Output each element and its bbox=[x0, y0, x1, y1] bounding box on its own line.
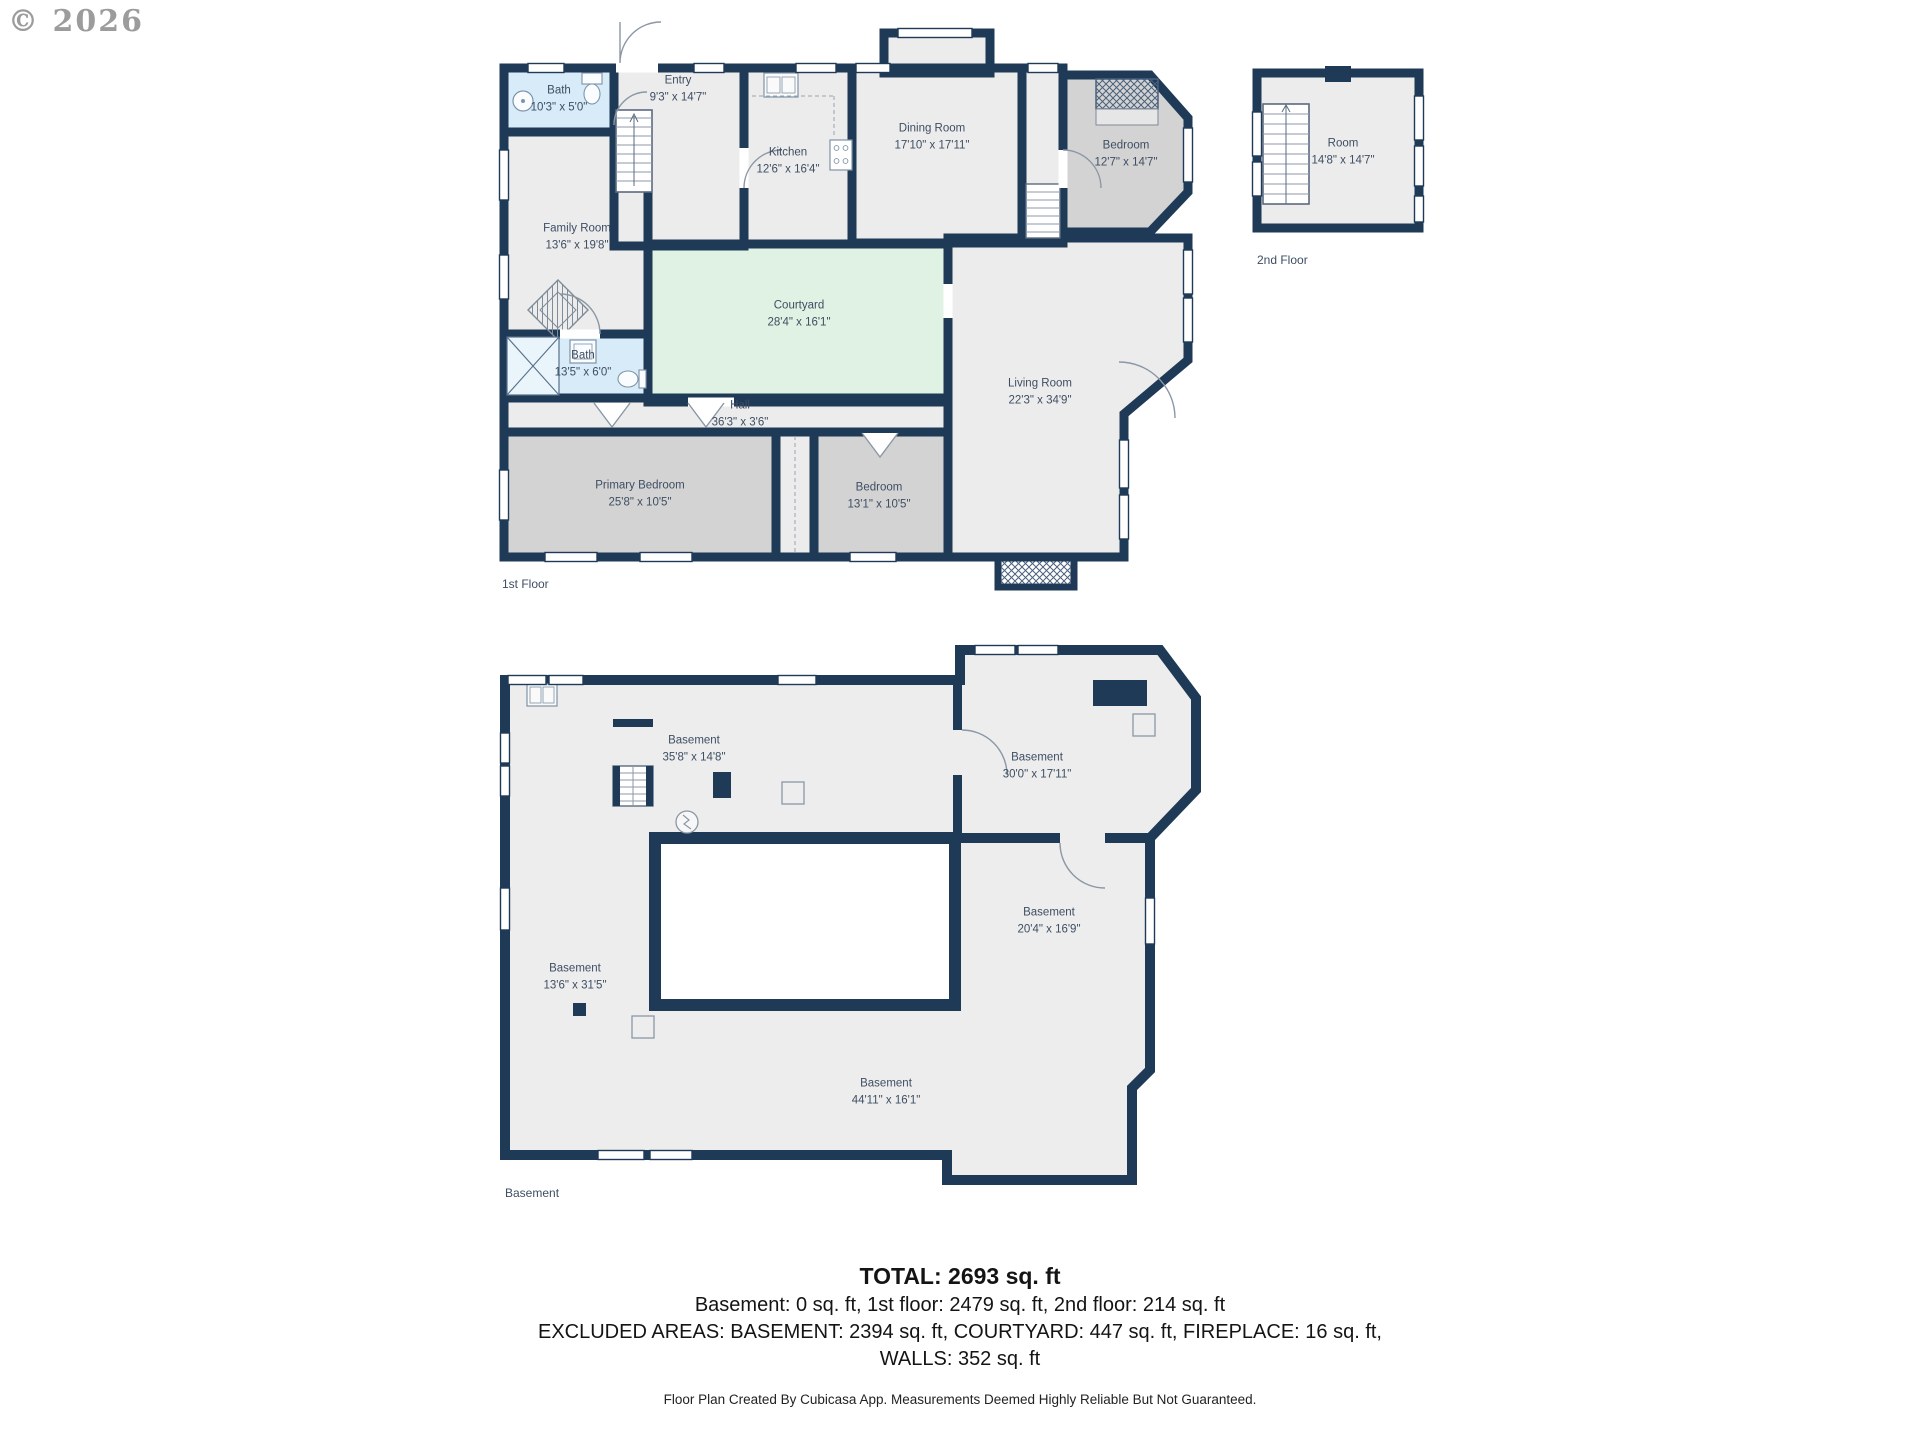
footer-disclaimer: Floor Plan Created By Cubicasa App. Meas… bbox=[0, 1392, 1920, 1407]
room-label-living-room: Living Room 22'3" x 34'9" bbox=[1008, 375, 1072, 408]
floor-label-basement: Basement bbox=[505, 1186, 559, 1200]
beam-icon bbox=[613, 719, 653, 727]
fireplace-icon bbox=[1093, 680, 1147, 706]
floor-label-2nd-floor: 2nd Floor bbox=[1257, 253, 1308, 267]
room-label-basement-5: Basement 44'11" x 16'1" bbox=[852, 1075, 921, 1108]
basement-void bbox=[655, 838, 955, 1005]
room-label-bath-1: Bath 10'3" x 5'0" bbox=[531, 82, 588, 115]
room-label-bedroom-1: Bedroom 12'7" x 14'7" bbox=[1094, 137, 1157, 170]
summary-floor-areas: Basement: 0 sq. ft, 1st floor: 2479 sq. … bbox=[0, 1294, 1920, 1317]
room-label-courtyard: Courtyard 28'4" x 16'1" bbox=[767, 297, 830, 330]
fireplace-icon bbox=[1096, 79, 1158, 125]
room-label-family-room: Family Room 13'6" x 19'8" bbox=[543, 220, 611, 253]
room-label-dining-room: Dining Room 17'10" x 17'11" bbox=[894, 120, 969, 153]
room-label-bath-2: Bath 13'5" x 6'0" bbox=[555, 347, 612, 380]
post-icon bbox=[573, 1003, 586, 1016]
room-label-primary-bedroom: Primary Bedroom 25'8" x 10'5" bbox=[595, 477, 684, 510]
summary-walls: WALLS: 352 sq. ft bbox=[0, 1348, 1920, 1371]
room-label-2nd-floor-room: Room 14'8" x 14'7" bbox=[1311, 135, 1374, 168]
room-label-basement-1: Basement 35'8" x 14'8" bbox=[662, 732, 725, 765]
stairs-icon bbox=[1026, 184, 1060, 238]
floor-label-1st-floor: 1st Floor bbox=[502, 577, 549, 591]
stove-icon bbox=[830, 140, 852, 170]
room-label-kitchen: Kitchen 12'6" x 16'4" bbox=[756, 144, 819, 177]
furnace-icon bbox=[713, 772, 731, 798]
shower-icon bbox=[507, 337, 559, 395]
room-label-entry: Entry 9'3" x 14'7" bbox=[650, 72, 707, 105]
floor-plan-page: © 2026 bbox=[0, 0, 1920, 1440]
stairs-icon bbox=[616, 110, 652, 192]
room-label-bedroom-2: Bedroom 13'1" x 10'5" bbox=[847, 479, 910, 512]
room-label-basement-2: Basement 30'0" x 17'11" bbox=[1003, 749, 1072, 782]
water-heater-icon bbox=[676, 811, 698, 833]
summary-excluded-areas: EXCLUDED AREAS: BASEMENT: 2394 sq. ft, C… bbox=[0, 1321, 1920, 1344]
room-label-hall: Hall 36'3" x 3'6" bbox=[712, 397, 769, 430]
chimney-notch bbox=[1325, 66, 1351, 82]
room-label-basement-3: Basement 20'4" x 16'9" bbox=[1017, 904, 1080, 937]
basement-plan bbox=[501, 646, 1197, 1181]
summary-total: TOTAL: 2693 sq. ft bbox=[0, 1263, 1920, 1290]
stairs-icon bbox=[613, 766, 653, 806]
sink-icon bbox=[764, 73, 798, 97]
toilet-icon bbox=[618, 370, 646, 388]
floor-plan-canvas bbox=[0, 0, 1920, 1440]
sink-icon bbox=[527, 684, 557, 706]
stairs-icon bbox=[1263, 104, 1309, 204]
room-label-basement-4: Basement 13'6" x 31'5" bbox=[543, 960, 606, 993]
